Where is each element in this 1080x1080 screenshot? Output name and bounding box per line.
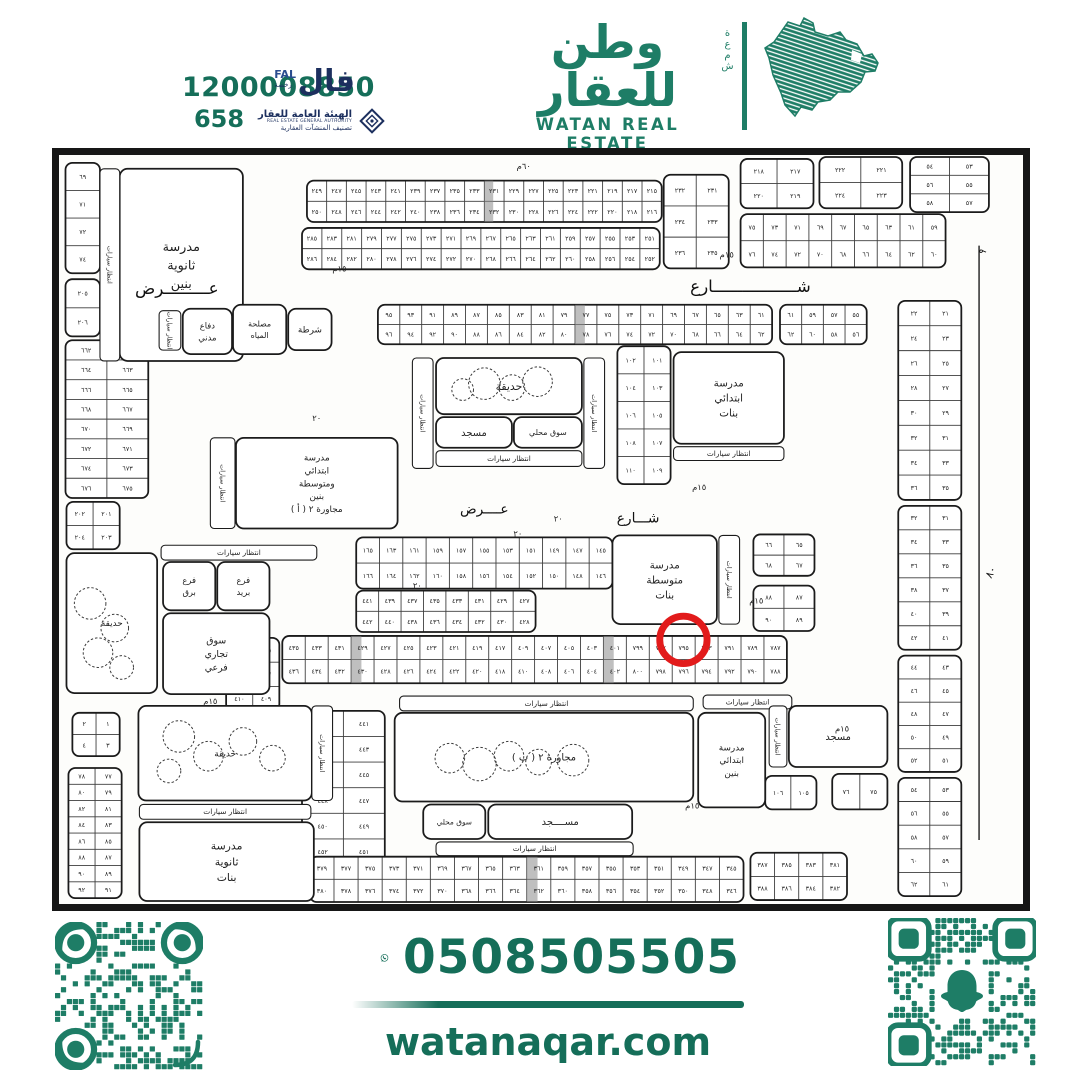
street-width-label: ١٥م [720, 249, 734, 259]
plot-number: ٦٧ [840, 224, 847, 232]
landmark-post-branch: فرعبريد [217, 562, 269, 610]
plot-block: ٦٦٢٦٦١٦٦٤٦٦٣٦٦٦٦٦٥٦٦٨٦٦٧٦٧٠٦٦٩٦٧٢٦٧١٦٧٤٦… [65, 340, 148, 498]
plot-number: ٢١٨ [627, 208, 638, 216]
plot-number: ٦٧٢ [81, 445, 92, 453]
plot-number: ٤٢٣ [426, 644, 437, 652]
plot-number: ٤٠ [911, 610, 918, 618]
plot-number: ٧٥ [604, 311, 611, 319]
landmark-sub-market: سوقتجاريفرعي [163, 613, 269, 694]
plot-number: ٦٢ [787, 331, 794, 339]
plot-number: ٨٥ [495, 311, 502, 319]
plot-number: ٥٩ [942, 857, 949, 865]
plot-block: ٦١٥٩٥٧٥٥٦٢٦٠٥٨٥٦ [780, 305, 867, 344]
plot-number: ٣٧٩ [317, 864, 328, 872]
plot-number: ٤٥٠ [318, 822, 328, 830]
plot-number: ٦٢ [758, 331, 765, 339]
plot-number: ٨٦ [78, 837, 85, 845]
plot-number: ٣٥٨ [582, 887, 593, 895]
street-width-label: ٢٠ [312, 413, 321, 423]
plot-number: ٦١ [942, 881, 949, 889]
plot-number: ٣٤٧ [702, 864, 713, 872]
plot-number: ١٠٦ [773, 789, 784, 797]
landmark-girls-sec-school: مدرسةثانويةبنات [139, 822, 313, 901]
plot-number: ٦٣ [736, 311, 743, 319]
plot-number: ٢٤٦ [351, 208, 362, 216]
plot-number: ٢٣٧ [430, 187, 441, 195]
plot-number: ٢٧٨ [386, 255, 397, 263]
plot-number: ٤٤ [911, 664, 918, 672]
plot-number: ٧٣ [626, 311, 633, 319]
plot-number: ٢٥٨ [585, 255, 596, 263]
plot-number: ٦٥ [796, 541, 803, 549]
plot-number: ٤٣٠ [497, 618, 507, 626]
plot-number: ٢٤٢ [390, 208, 401, 216]
plot-number: ٢٥٧ [585, 235, 596, 243]
plot-number: ٧٢ [648, 331, 655, 339]
plot-number: ٩٢ [429, 331, 436, 339]
landmark-label: بنين [724, 769, 739, 779]
plot-number: ٣٥٤ [630, 887, 640, 895]
plot-number: ٢٣٣ [707, 218, 718, 226]
plot-number: ٨٥ [105, 837, 112, 845]
plot-number: ١٥٠ [549, 572, 559, 580]
plot-block: ٣٨٧٣٨٥٣٨٣٣٨١٣٨٨٣٨٦٣٨٤٣٨٢ [750, 853, 847, 900]
landmark-label: مصلحة [248, 319, 271, 328]
plot-number: ٤٢ [911, 634, 918, 642]
plot-number: ٧٨٩ [747, 644, 758, 652]
plot-number: ٦٠ [931, 250, 938, 258]
plot-number: ٨٢ [78, 805, 85, 813]
plot-number: ٩٢ [78, 886, 85, 894]
landmark-label: ابتدائي [719, 756, 744, 766]
plot-number: ٢٧٢ [446, 255, 457, 263]
landmark-label: بنين [310, 492, 325, 502]
plot-number: ٨٠ [561, 331, 568, 339]
plot-number: ٢٣٤ [469, 208, 479, 216]
landmark-police: شرطة [288, 309, 331, 350]
plot-number: ٢٤ [911, 334, 918, 342]
plot-number: ٩١ [429, 311, 436, 319]
plot-number: ٢٧ [942, 384, 949, 392]
plot-number: ٤٢١ [449, 644, 459, 652]
plot-number: ٤٤٥ [359, 771, 370, 779]
plot-number: ٤٣٩ [385, 597, 396, 605]
parking-label: انتظار سيارات [100, 169, 120, 361]
plot-number: ٧٨ [78, 772, 85, 780]
plot-number: ٢٣٨ [430, 208, 441, 216]
plot-number: ٦٤ [736, 331, 743, 339]
plot-number: ٤٢٨ [380, 668, 391, 676]
plot-number: ١٥٤ [502, 572, 512, 580]
rega-tagline: تصنيف المنشآت العقارية [258, 125, 352, 132]
plot-number: ٧٩٩ [633, 644, 644, 652]
parking-label: انتظار سيارات [412, 358, 433, 468]
plot-number: ٥٦ [926, 181, 933, 189]
landmark-civil-defense: دفاعمدني [183, 309, 232, 354]
plot-number: ٣٠ [911, 409, 918, 417]
plot-number: ٤٠٣ [587, 644, 598, 652]
plot-number: ٣٧٠ [437, 887, 447, 895]
plot-number: ٢٢٢ [835, 166, 846, 174]
plot-block: ٥٤٥٣٥٦٥٥٥٨٥٧ [910, 157, 989, 212]
plot-number: ٢٦٦ [506, 255, 517, 263]
plot-number: ٦٩ [79, 173, 86, 181]
plot-number: ٣٢ [911, 514, 918, 522]
plot-number: ٥٤ [926, 162, 933, 170]
plot-number: ٢٣٥ [707, 249, 718, 257]
plot-number: ٨٠٠ [633, 668, 643, 676]
landmark-garden-top: حديقة [436, 358, 582, 414]
plot-number: ١٠٧ [652, 439, 663, 447]
plot-number: ١٦٣ [386, 546, 397, 554]
parking-label: انتظار سيارات [139, 804, 310, 819]
svg-text:انتظار سيارات: انتظار سيارات [105, 246, 113, 284]
plot-number: ٧٦ [604, 331, 611, 339]
plot-number: ٢٨٤ [327, 255, 337, 263]
plot-number: ٢٤٩ [312, 187, 323, 195]
plot-number: ٤١٨ [495, 668, 506, 676]
plot-number: ٢٢٤ [835, 192, 845, 200]
plot-number: ٢٦٠ [565, 255, 575, 263]
plot-number: ٤٤١ [359, 720, 369, 728]
plot-number: ٧٠ [817, 250, 824, 258]
landmark-water-authority: مصلحةالمياه [233, 305, 286, 354]
plot-number: ٦٨ [840, 250, 847, 258]
plot-number: ١٤٨ [572, 572, 583, 580]
plot-number: ٢٧٧ [386, 235, 397, 243]
plot-number: ١٦٤ [386, 572, 396, 580]
plot-number: ٢٤١ [390, 187, 400, 195]
plot-number: ٦٦٨ [81, 406, 92, 414]
plot-number: ١١٠ [626, 467, 636, 475]
plot-number: ٢١٥ [647, 187, 658, 195]
plot-number: ٧٨٨ [770, 668, 781, 676]
parking-label: انتظار سيارات [436, 842, 633, 856]
plot-number: ٨٨ [78, 854, 85, 862]
plot-number: ٣ [106, 742, 110, 750]
plot-number: ٧٩١ [724, 644, 734, 652]
landmark-label: مســــجد [542, 817, 579, 828]
plot-number: ٢٣٣ [469, 187, 480, 195]
street-width-label: ١٥م [332, 263, 346, 273]
plot-number: ٧٦ [749, 250, 756, 258]
plot-number: ٣٧٨ [341, 887, 352, 895]
plot-number: ١٤٥ [596, 546, 607, 554]
plot-number: ٦٧٣ [122, 465, 133, 473]
plot-number: ٥٨ [831, 331, 838, 339]
plot-number: ٤١٩ [472, 644, 483, 652]
landmark-label: بريد [237, 587, 251, 597]
plot-number: ٥٨ [911, 833, 918, 841]
plot-number: ١٥٧ [456, 546, 467, 554]
landmark-label: حديقة [101, 619, 123, 629]
plot-number: ٤٣٥ [430, 597, 441, 605]
street-width-label: ١٥م [692, 482, 706, 492]
landmark-label: دفاع [200, 320, 216, 330]
plot-number: ٢١٧ [627, 187, 638, 195]
plot-number: ٢٣٦ [675, 249, 686, 257]
plot-number: ٢١٦ [647, 208, 658, 216]
plot-number: ٢١٩ [790, 192, 801, 200]
landmark-label: بنات [719, 408, 738, 420]
plot-number: ٧٥ [749, 224, 756, 232]
contact-number-short[interactable]: 658 [182, 105, 256, 133]
street-label: عــــرض [460, 502, 509, 518]
plot-number: ٧٩٨ [656, 668, 667, 676]
plot-number: ٣٨ [911, 586, 918, 594]
plot-number: ١٦١ [409, 546, 419, 554]
plot-number: ٣٦ [911, 484, 918, 492]
parking-label: انتظار سيارات [584, 358, 605, 468]
plot-number: ٦٩ [670, 311, 677, 319]
plot-block: ٧٦٧٥ [832, 774, 887, 809]
plot-number: ٦١ [908, 224, 915, 232]
plot-number: ٧٥ [870, 788, 877, 796]
plot-number: ٢٧٩ [366, 235, 377, 243]
landmark-label: سوق محلي [437, 817, 472, 826]
plot-number: ٢٧١ [446, 235, 456, 243]
plot-number: ١٠٤ [626, 384, 636, 392]
plot-number: ١٠٥ [798, 789, 809, 797]
plot-number: ٤٤٩ [359, 822, 370, 830]
plot-number: ٣٦٠ [558, 887, 568, 895]
plot-number: ٤٨ [911, 710, 918, 718]
parking-label: انتظار سيارات [312, 706, 333, 801]
whatsapp-number: 0508505505 [403, 930, 740, 985]
plot-number: ٢٥٦ [605, 255, 616, 263]
plot-number: ٤٣٣ [452, 597, 463, 605]
plot-number: ٥٩ [931, 224, 938, 232]
landmark-label: سوق [206, 635, 226, 646]
plot-number: ٨٣ [105, 821, 112, 829]
plot-number: ٦٥ [714, 311, 721, 319]
plot-number: ٦٢ [908, 250, 915, 258]
parking-label: انتظار سيارات [159, 311, 181, 350]
plot-number: ٦٧ [796, 562, 803, 570]
website-link[interactable]: watanaqar.com [352, 1020, 744, 1064]
plot-number: ٣٤٨ [702, 887, 713, 895]
plot-number: ٢٢٠ [754, 192, 764, 200]
svg-text:انتظار سيارات: انتظار سيارات [525, 699, 569, 708]
plot-number: ٢٦٢ [545, 255, 556, 263]
plot-number: ٣٦١ [534, 864, 544, 872]
plot-number: ٥٥ [942, 810, 949, 818]
plot-number: ٤٩ [942, 733, 949, 741]
plot-number: ١٥٣ [502, 546, 513, 554]
plot-block: ٦٦٦٥٦٨٦٧ [753, 534, 814, 575]
plot-number: ١٠١ [652, 356, 662, 364]
plot-number: ٤٤٧ [359, 797, 370, 805]
plot-number: ٥٣ [966, 162, 973, 170]
plot-number: ٤٣٧ [407, 597, 418, 605]
rega-diamond-icon [357, 106, 387, 136]
plot-number: ٦٨ [765, 562, 772, 570]
landmark-market-top: سوق محلي [514, 417, 582, 448]
plot-number: ٧٦ [843, 788, 850, 796]
plot-number: ٤٢٤ [426, 668, 436, 676]
plot-number: ٩٥ [385, 311, 392, 319]
landmark-label: تجاري [205, 649, 229, 660]
plot-number: ٢٥٣ [625, 235, 636, 243]
plot-number: ٥٩ [809, 311, 816, 319]
plot-number: ١٠٢ [626, 356, 637, 364]
plot-number: ١٤٦ [596, 572, 607, 580]
plot-number: ٥٥ [852, 311, 859, 319]
plot-number: ٧٤ [626, 331, 633, 339]
svg-text:انتظار سيارات: انتظار سيارات [318, 734, 326, 772]
landmark-label: مجاورة ٢ ( ب ) [512, 753, 576, 764]
plot-number: ٢٢١ [876, 166, 886, 174]
qr-code-left[interactable] [55, 922, 203, 1070]
plot-number: ٥٥ [966, 181, 973, 189]
plot-number: ٦٧١ [122, 445, 132, 453]
whatsapp-icon [380, 932, 389, 984]
plot-block: ٤٤١٤٣٩٤٣٧٤٣٥٤٣٣٤٣١٤٢٩٤٢٧٤٤٢٤٤٠٤٣٨٤٣٦٤٣٤٤… [356, 591, 535, 632]
plot-number: ٢٦٩ [466, 235, 477, 243]
plot-block: ٣٢٣١٣٤٣٣٣٦٣٥٣٨٣٧٤٠٣٩٤٢٤١ [898, 506, 961, 650]
qr-code-snapchat[interactable] [888, 918, 1036, 1066]
whatsapp-contact[interactable]: 0508505505 [380, 930, 740, 985]
plot-number: ٦١ [758, 311, 765, 319]
plot-number: ٦١ [787, 311, 794, 319]
plot-number: ٢٥٢ [645, 255, 656, 263]
landmark-label: المياه [251, 331, 269, 340]
plot-number: ١٥٢ [526, 572, 537, 580]
plot-number: ٧٤ [771, 250, 778, 258]
plot-number: ٤٠٥ [564, 644, 575, 652]
plot-number: ٤٠٢ [610, 668, 621, 676]
plot-number: ٧١ [648, 311, 655, 319]
landmark-mosque-top: مسجد [436, 417, 512, 448]
plot-number: ٢٨ [911, 384, 918, 392]
plot-number: ٢٨١ [347, 235, 357, 243]
plot-number: ٦٤ [885, 250, 892, 258]
parking-label: انتظار سيارات [674, 447, 784, 461]
plot-number: ٣٧٢ [413, 887, 424, 895]
brand-vertical-text: شمعة [722, 28, 732, 132]
plot-number: ٢٣٤ [675, 218, 685, 226]
plot-number: ٢١ [942, 310, 949, 318]
cadastral-map: ٦٩٧١٧٢٧٤٢٠٥٢٠٦٢٤٩٢٤٧٢٤٥٢٤٣٢٤١٢٣٩٢٣٧٢٣٥٢٣… [52, 148, 1030, 911]
plot-number: ٣٦٩ [437, 864, 448, 872]
plot-number: ١٠٩ [652, 467, 663, 475]
plot-number: ١٤٩ [549, 546, 560, 554]
plot-number: ١٥٨ [456, 572, 467, 580]
brand-wordmark: وطن للعقار WATAN REAL ESTATE [500, 18, 715, 153]
svg-text:انتظار سيارات: انتظار سيارات [725, 561, 733, 599]
landmark-girls-primary-school: مدرسةابتدائيبنات [674, 352, 784, 444]
plot-number: ٣٦ [911, 562, 918, 570]
plot-number: ٤٤٠ [385, 618, 395, 626]
plot-number: ٢٠٤ [75, 534, 85, 542]
plot-number: ٤١ [942, 634, 949, 642]
plot-number: ٦٧٥ [122, 484, 133, 492]
svg-text:انتظار سيارات: انتظار سيارات [217, 548, 261, 557]
plot-block: ١٦٥١٦٣١٦١١٥٩١٥٧١٥٥١٥٣١٥١١٤٩١٤٧١٤٥١٦٦١٦٤١… [356, 537, 612, 588]
plot-number: ٧١ [794, 224, 801, 232]
plot-number: ٤٣١ [474, 597, 484, 605]
plot-number: ٢٤٤ [371, 208, 381, 216]
plot-number: ٢٠٦ [78, 318, 89, 326]
plot-number: ٧٠ [670, 331, 677, 339]
plot-number: ٦٠ [911, 857, 918, 865]
plot-number: ٢١٩ [607, 187, 618, 195]
plot-number: ٨٧ [473, 311, 480, 319]
plot-number: ٥٧ [831, 311, 838, 319]
plot-number: ٢٢٥ [548, 187, 559, 195]
svg-text:انتظار سيارات: انتظار سيارات [203, 807, 247, 816]
plot-block: ٢٠٢٢٠١٢٠٤٢٠٣ [66, 502, 119, 549]
street-width-label: ١٥م [203, 696, 217, 706]
plot-number: ٣٥ [942, 562, 949, 570]
plot-number: ٥٢ [911, 757, 918, 765]
plot-number: ٢٤٠ [410, 208, 420, 216]
landmark-label: بنات [655, 589, 674, 601]
plot-number: ٤٢٩ [497, 597, 508, 605]
plot-number: ٧٣ [771, 224, 778, 232]
plot-number: ٢٢٨ [528, 208, 539, 216]
plot-number: ٣٣ [942, 459, 949, 467]
plot-number: ٢٢٠ [607, 208, 617, 216]
plot-number: ٤٣٤ [312, 668, 322, 676]
plot-number: ٣٨٤ [806, 884, 816, 892]
plot-number: ٢٦٨ [486, 255, 497, 263]
plot-number: ٦٩ [817, 224, 824, 232]
parking-label: انتظار سيارات [436, 451, 582, 467]
plot-number: ١ [106, 720, 109, 728]
plot-number: ٩٠ [78, 870, 85, 878]
plot-number: ٢٣٥ [450, 187, 461, 195]
plot-number: ٢٢٣ [876, 192, 887, 200]
plot-number: ٢٣٠ [509, 208, 519, 216]
plot-number: ٦٧٤ [81, 465, 91, 473]
landmark-label: مدرسة [163, 240, 200, 255]
street-width-label: ١٥م [749, 595, 763, 605]
plot-number: ٤٢٠ [472, 668, 482, 676]
plot-number: ٢٢٢ [588, 208, 599, 216]
landmark-label: ثانوية [215, 855, 239, 868]
plot-number: ٣٥٧ [582, 864, 593, 872]
saudi-map-logo [756, 8, 881, 138]
plot-number: ٣٨١ [830, 861, 840, 869]
plot-number: ٦٦ [862, 250, 869, 258]
plot-number: ٢٦٤ [525, 255, 535, 263]
plot-number: ٤٢٧ [519, 597, 530, 605]
plot-number: ٨٧ [105, 854, 112, 862]
plot-number: ٤٠١ [610, 644, 620, 652]
plot-number: ٢٠٢ [75, 510, 86, 518]
plot-block: ٤٣٥٤٣٣٤٣١٤٢٩٤٢٧٤٢٥٤٢٣٤٢١٤١٩٤١٧٤٠٩٤٠٧٤٠٥٤… [282, 636, 787, 683]
plot-number: ٢٥١ [645, 235, 655, 243]
svg-text:انتظار سيارات: انتظار سيارات [487, 454, 531, 463]
plot-number: ٦٦ [714, 331, 721, 339]
landmark-label: مدرسة [650, 559, 680, 571]
plot-number: ٣٨٣ [806, 861, 817, 869]
plot-number: ١٠٨ [626, 439, 637, 447]
landmark-mosque-east: مسجد [789, 706, 888, 767]
plot-number: ٤٤١ [362, 597, 372, 605]
plot-number: ٢ [82, 720, 86, 728]
plot-number: ٢٨٥ [307, 235, 318, 243]
fal-license: رخصة [274, 81, 296, 89]
street-label: شـــــــــــــــــارع [690, 276, 811, 297]
plot-number: ٤١٠ [518, 668, 528, 676]
plot-number: ٢٢٧ [528, 187, 539, 195]
plot-number: ٢٥٥ [605, 235, 616, 243]
plot-number: ٢٨٣ [327, 235, 338, 243]
plot-number: ٥١ [942, 757, 949, 765]
plot-number: ٧٩٥ [679, 644, 690, 652]
